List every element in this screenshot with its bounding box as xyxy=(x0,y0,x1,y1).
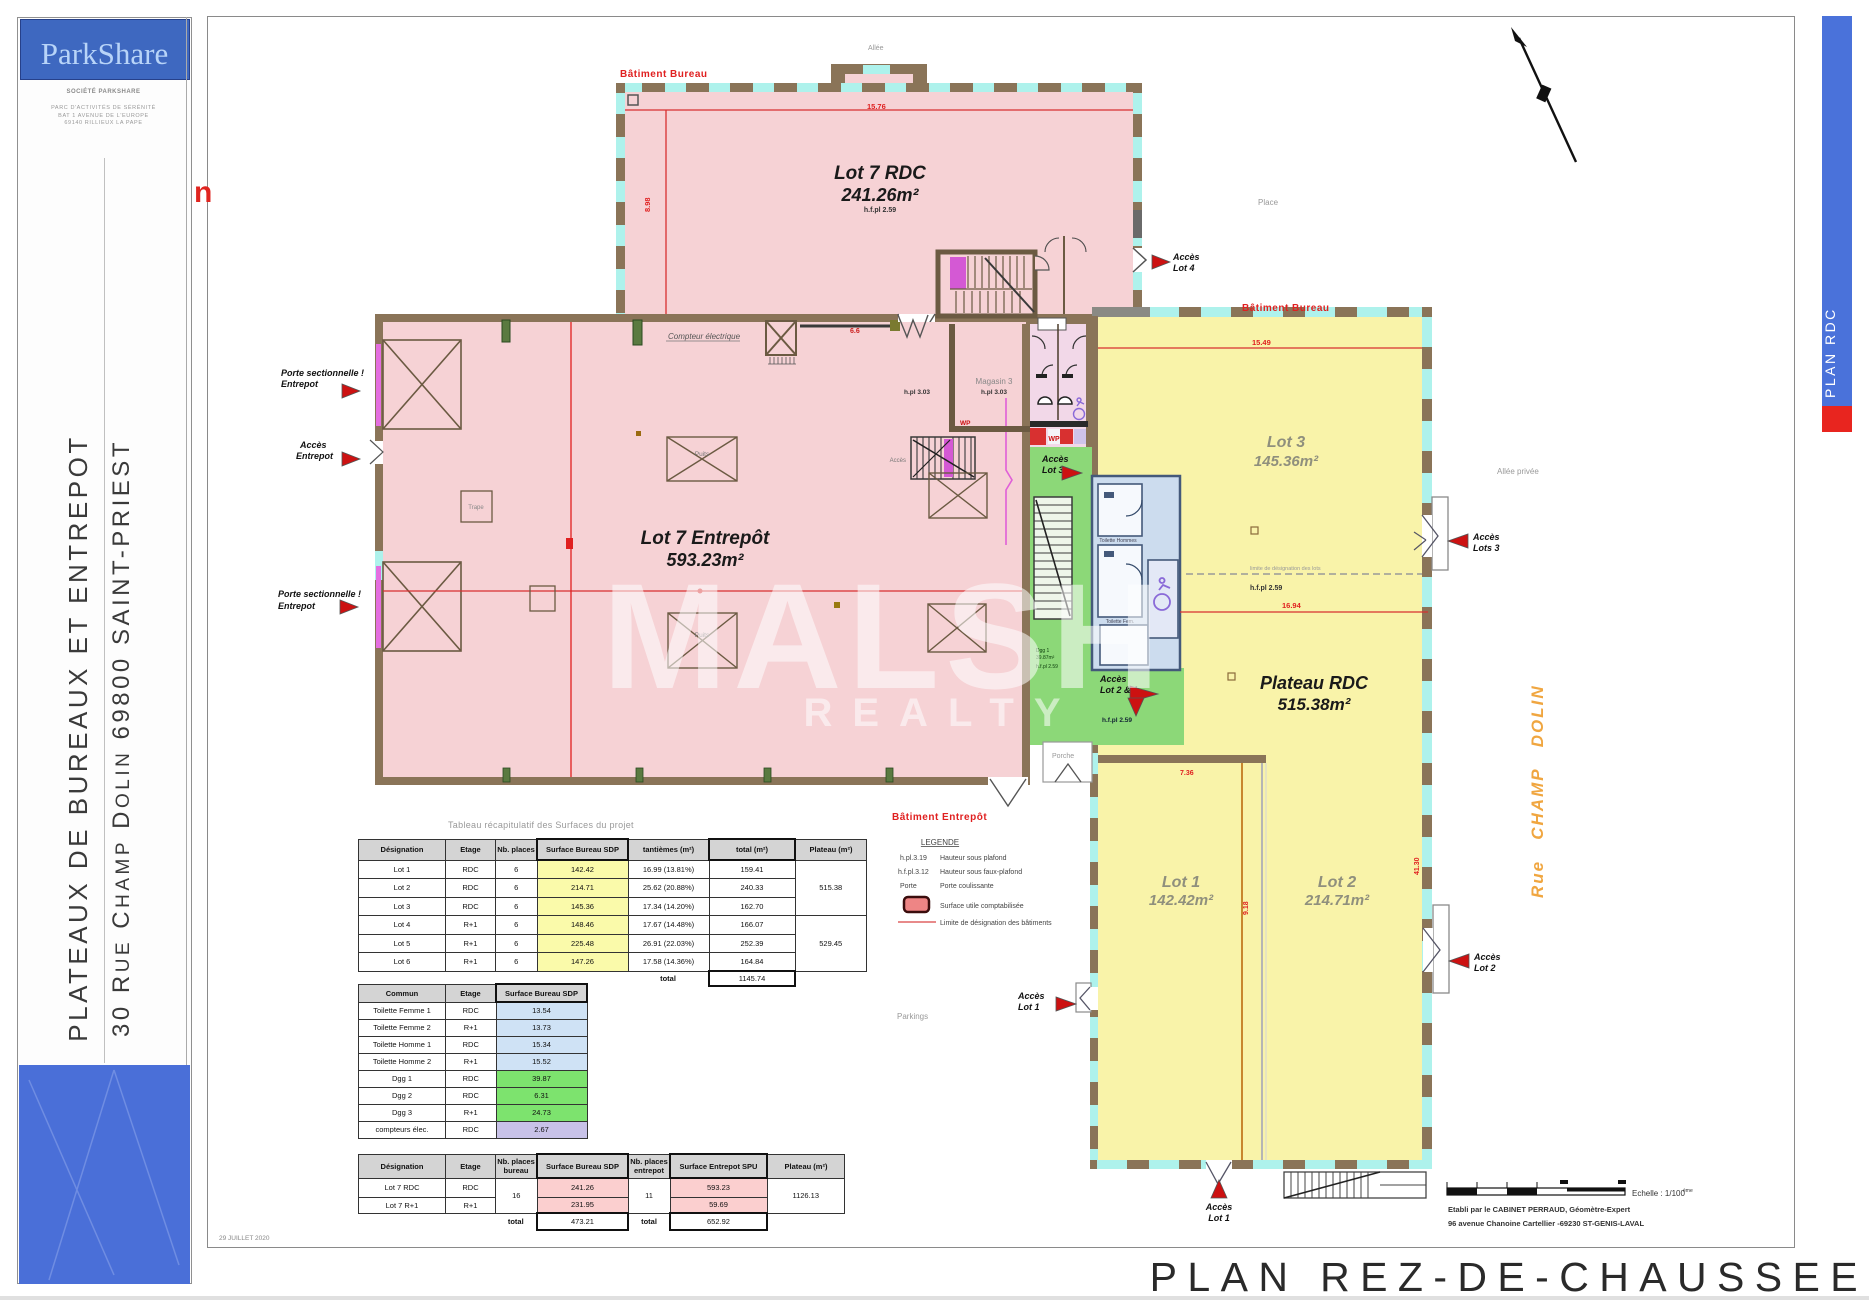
svg-text:limite de désignation des lots: limite de désignation des lots xyxy=(1250,566,1321,572)
svg-text:Lot 7 RDC: Lot 7 RDC xyxy=(834,163,926,184)
svg-text:Accès: Accès xyxy=(1205,1202,1233,1212)
svg-text:Entrepot: Entrepot xyxy=(281,379,319,389)
svg-text:Lot 7 Entrepôt: Lot 7 Entrepôt xyxy=(641,528,770,549)
svg-text:Magasin 3: Magasin 3 xyxy=(976,377,1013,386)
svg-text:Lot 3: Lot 3 xyxy=(1267,434,1305,451)
svg-text:15.76: 15.76 xyxy=(867,102,886,111)
svg-text:Porte: Porte xyxy=(900,883,917,890)
svg-text:Trape: Trape xyxy=(468,505,484,511)
svg-text:Bâtiment Bureau: Bâtiment Bureau xyxy=(1242,303,1330,314)
svg-text:Lots 3: Lots 3 xyxy=(1473,543,1500,553)
svg-text:h.f.pl.3.12: h.f.pl.3.12 xyxy=(898,869,929,876)
svg-text:h.pl 3.03: h.pl 3.03 xyxy=(981,389,1007,396)
svg-text:41.30: 41.30 xyxy=(1414,857,1421,875)
svg-text:Bâtiment Entrepôt: Bâtiment Entrepôt xyxy=(892,812,987,823)
svg-text:Porte coulissante: Porte coulissante xyxy=(940,883,994,890)
svg-text:Place: Place xyxy=(1258,198,1279,207)
svg-text:h.pl.3.19: h.pl.3.19 xyxy=(900,855,927,862)
svg-text:241.26m²: 241.26m² xyxy=(840,185,919,205)
svg-text:Toilette Hommes: Toilette Hommes xyxy=(1099,538,1137,544)
svg-text:Hauteur sous plafond: Hauteur sous plafond xyxy=(940,855,1007,862)
svg-text:REALTY: REALTY xyxy=(803,691,1080,735)
svg-text:Accès: Accès xyxy=(1017,991,1045,1001)
svg-text:Plateau RDC: Plateau RDC xyxy=(1260,673,1369,693)
svg-text:145.36m²: 145.36m² xyxy=(1254,453,1319,470)
svg-text:Entrepot: Entrepot xyxy=(296,451,334,461)
svg-text:142.42m²: 142.42m² xyxy=(1149,892,1214,909)
svg-text:ème: ème xyxy=(1683,1188,1693,1194)
svg-text:Allée privée: Allée privée xyxy=(1497,467,1539,476)
svg-text:Etabli par le CABINET PERRAUD,: Etabli par le CABINET PERRAUD, Géomètre-… xyxy=(1448,1205,1631,1214)
svg-text:Accès: Accès xyxy=(1473,952,1501,962)
svg-text:Accès: Accès xyxy=(1172,252,1200,262)
svg-text:214.71m²: 214.71m² xyxy=(1304,892,1370,909)
svg-text:Porte sectionnelle !: Porte sectionnelle ! xyxy=(281,368,364,378)
svg-text:7.36: 7.36 xyxy=(1180,770,1194,777)
svg-text:15.49: 15.49 xyxy=(1252,338,1271,347)
svg-text:Lot 1: Lot 1 xyxy=(1018,1002,1040,1012)
svg-text:515.38m²: 515.38m² xyxy=(1278,695,1352,714)
svg-text:6.6: 6.6 xyxy=(850,328,860,335)
svg-text:9.18: 9.18 xyxy=(1243,901,1250,915)
svg-text:Hauteur sous faux-plafond: Hauteur sous faux-plafond xyxy=(940,869,1022,876)
svg-text:Lot 1: Lot 1 xyxy=(1208,1213,1230,1223)
svg-text:29 JUILLET 2020: 29 JUILLET 2020 xyxy=(219,1235,270,1242)
svg-text:Compteur électrique: Compteur électrique xyxy=(668,332,741,341)
svg-text:LEGENDE: LEGENDE xyxy=(921,838,959,847)
svg-text:96 avenue Chanoine Cartellier: 96 avenue Chanoine Cartellier -69230 ST-… xyxy=(1448,1219,1644,1228)
svg-text:Surface utile comptabilisée: Surface utile comptabilisée xyxy=(940,903,1024,910)
svg-text:Porche: Porche xyxy=(1052,753,1074,760)
svg-text:16.94: 16.94 xyxy=(1282,601,1302,610)
svg-text:8.98: 8.98 xyxy=(643,197,652,212)
svg-text:Entrepot: Entrepot xyxy=(278,601,316,611)
svg-text:Lot 1: Lot 1 xyxy=(1162,874,1200,891)
svg-text:Echelle : 1/100: Echelle : 1/100 xyxy=(1632,1189,1685,1198)
svg-text:Accès: Accès xyxy=(1472,532,1500,542)
svg-text:Bâtiment Bureau: Bâtiment Bureau xyxy=(620,69,708,80)
svg-text:Porte sectionnelle !: Porte sectionnelle ! xyxy=(278,589,361,599)
svg-text:Accès: Accès xyxy=(1041,454,1069,464)
svg-text:h.pl 3.03: h.pl 3.03 xyxy=(904,389,930,396)
svg-text:Accès: Accès xyxy=(299,440,327,450)
svg-text:Puits: Puits xyxy=(695,451,710,458)
svg-text:Lot 4: Lot 4 xyxy=(1173,263,1195,273)
svg-text:Lot 3: Lot 3 xyxy=(1042,465,1064,475)
svg-text:Accès: Accès xyxy=(890,458,906,464)
svg-text:Lot 2: Lot 2 xyxy=(1318,874,1356,891)
svg-text:h.f.pl 2.59: h.f.pl 2.59 xyxy=(864,207,896,214)
svg-text:Lot 2: Lot 2 xyxy=(1474,963,1496,973)
svg-text:WP: WP xyxy=(960,420,971,427)
svg-text:Allée: Allée xyxy=(868,45,884,52)
svg-text:Parkings: Parkings xyxy=(897,1012,928,1021)
svg-text:Limite de désignation des bâti: Limite de désignation des bâtiments xyxy=(940,920,1052,927)
svg-text:h.f.pl 2.59: h.f.pl 2.59 xyxy=(1250,585,1282,592)
svg-text:WP: WP xyxy=(1048,436,1060,443)
